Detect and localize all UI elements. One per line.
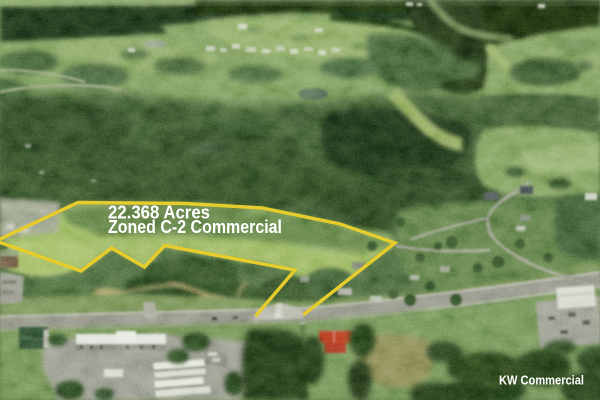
svg-text:KW Commercial: KW Commercial xyxy=(499,373,584,388)
svg-text:Zoned C-2 Commercial: Zoned C-2 Commercial xyxy=(108,217,282,237)
